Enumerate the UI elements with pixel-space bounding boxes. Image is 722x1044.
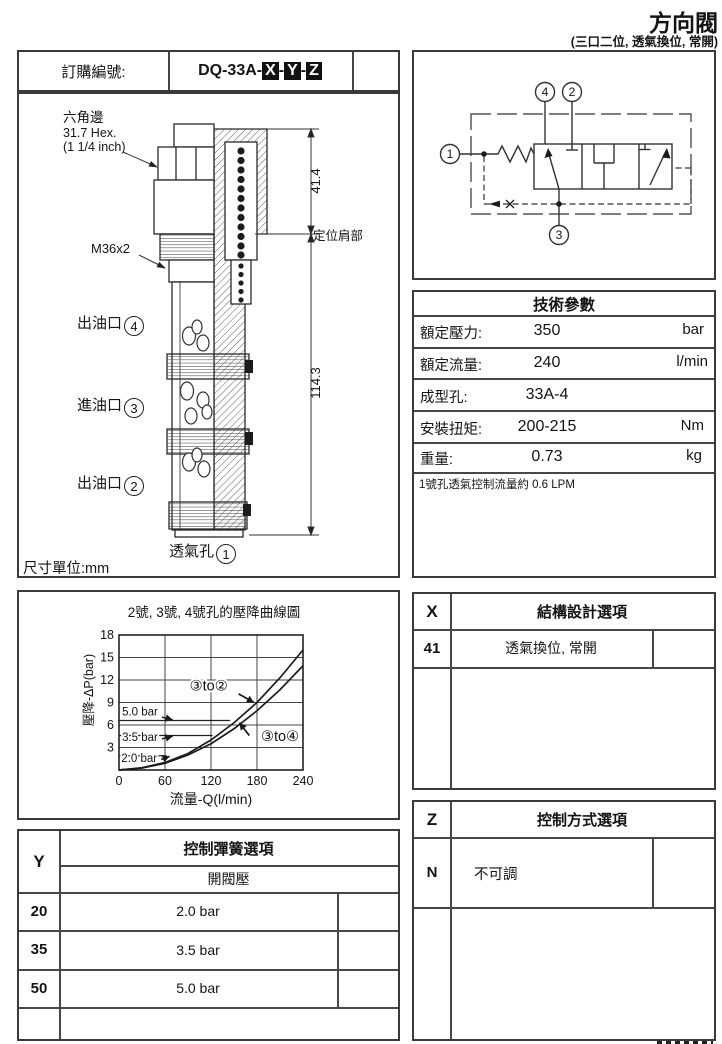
y-table-code: Y xyxy=(19,831,59,892)
tech-row-value: 350 xyxy=(487,319,607,343)
order-code-x: X xyxy=(262,62,279,80)
svg-text:3: 3 xyxy=(107,741,114,755)
symbol-port-2: 2 xyxy=(569,85,576,99)
order-code: DQ-33A-X-Y-Z xyxy=(168,52,352,90)
tech-row-value: 200-215 xyxy=(487,415,607,439)
port4-label-text: 出油口 xyxy=(77,315,122,332)
hydraulic-symbol-panel: 4 2 1 3 xyxy=(412,50,716,280)
shoulder-label: 定位肩部 xyxy=(313,225,363,244)
z-options-table: Z 控制方式選項 N 不可調 xyxy=(412,800,716,1041)
svg-text:12: 12 xyxy=(100,673,114,687)
z-option-code: N xyxy=(414,837,450,907)
tech-row-value: 33A-4 xyxy=(487,383,607,407)
tech-row-value: 240 xyxy=(487,351,607,375)
port4-label: 出油口4 xyxy=(77,312,144,336)
dim-114-label: 114.3 xyxy=(306,360,324,406)
z-table-code: Z xyxy=(414,802,450,837)
hex-label-inch: (1 1/4 inch) xyxy=(63,140,126,154)
hydraulic-symbol: 4 2 1 3 xyxy=(414,52,714,278)
order-code-y: Y xyxy=(284,62,301,80)
tech-row-label: 成型孔: xyxy=(420,386,468,407)
y-table-subheader: 開閥壓 xyxy=(59,865,398,892)
tech-row-unit: bar xyxy=(682,321,704,338)
tech-table-note: 1號孔透氣控制流量約 0.6 LPM xyxy=(419,476,575,492)
svg-text:③to②: ③to② xyxy=(190,679,228,695)
port3-label-text: 進油口 xyxy=(77,397,122,414)
y-option-code: 20 xyxy=(19,892,59,930)
svg-text:180: 180 xyxy=(247,774,268,788)
order-code-z: Z xyxy=(306,62,322,80)
y-option-code: 35 xyxy=(19,930,59,969)
x-options-table: X 結構設計選項 41 透氣換位, 常開 xyxy=(412,592,716,790)
svg-text:0: 0 xyxy=(116,774,123,788)
hex-label: 六角邊 31.7 Hex. (1 1/4 inch) xyxy=(63,110,126,154)
z-table-header: 控制方式選項 xyxy=(450,802,714,837)
y-option-code: 50 xyxy=(19,969,59,1007)
svg-text:15: 15 xyxy=(100,651,114,665)
svg-text:③to④: ③to④ xyxy=(261,729,299,745)
port3-label: 進油口3 xyxy=(77,394,144,418)
svg-text:5.0 bar: 5.0 bar xyxy=(122,707,158,719)
svg-text:240: 240 xyxy=(293,774,314,788)
tech-row-value: 0.73 xyxy=(487,445,607,469)
datasheet-page: 方向閥 (三口二位, 透氣換位, 常開) 訂購編號: DQ-33A-X-Y-Z xyxy=(0,0,722,1044)
y-options-table: Y 控制彈簧選項 開閥壓 20 2.0 bar 35 3.5 bar 50 5.… xyxy=(17,829,400,1041)
port2-label: 出油口2 xyxy=(77,472,144,496)
hex-label-cn: 六角邊 xyxy=(63,110,126,126)
vent-label: 透氣孔1 xyxy=(169,540,236,564)
tech-table-header: 技術參數 xyxy=(414,292,714,315)
y-option-desc: 5.0 bar xyxy=(59,969,337,1007)
port2-number: 2 xyxy=(124,476,144,496)
tech-row-label: 安裝扭矩: xyxy=(420,418,482,439)
symbol-port-1: 1 xyxy=(447,147,454,161)
order-box: 訂購編號: DQ-33A-X-Y-Z xyxy=(17,50,400,92)
x-option-code: 41 xyxy=(414,629,450,667)
port2-label-text: 出油口 xyxy=(77,475,122,492)
x-option-desc: 透氣換位, 常開 xyxy=(450,629,652,667)
x-table-code: X xyxy=(414,594,450,629)
y-option-desc: 3.5 bar xyxy=(59,930,337,969)
svg-text:3.5 bar: 3.5 bar xyxy=(122,732,158,744)
port4-number: 4 xyxy=(124,316,144,336)
svg-text:60: 60 xyxy=(158,774,172,788)
y-option-desc: 2.0 bar xyxy=(59,892,337,930)
dimension-unit-note: 尺寸單位:mm xyxy=(23,557,109,578)
order-label: 訂購編號: xyxy=(19,52,168,90)
page-subtitle: (三口二位, 透氣換位, 常開) xyxy=(571,31,718,50)
tech-parameters-table: 技術參數 額定壓力: 350 bar 額定流量: 240 l/min 成型孔: … xyxy=(412,290,716,578)
symbol-port-4: 4 xyxy=(542,85,549,99)
tech-row-label: 重量: xyxy=(420,448,453,469)
svg-text:18: 18 xyxy=(100,628,114,642)
x-table-header: 結構設計選項 xyxy=(450,594,714,629)
thread-label: M36x2 xyxy=(91,241,130,256)
valve-cross-section-drawing xyxy=(19,94,398,576)
svg-text:120: 120 xyxy=(201,774,222,788)
svg-text:9: 9 xyxy=(107,696,114,710)
order-code-prefix: DQ-33A xyxy=(198,62,257,80)
port3-number: 3 xyxy=(124,398,144,418)
pressure-drop-chart-panel: 2號, 3號, 4號孔的壓降曲線圖 壓降-ΔP(bar) 流量-Q(l/min)… xyxy=(17,590,400,820)
vent-label-text: 透氣孔 xyxy=(169,543,214,560)
svg-text:2.0 bar: 2.0 bar xyxy=(121,753,157,765)
dim-41-label: 41.4 xyxy=(306,160,324,202)
tech-row-unit: l/min xyxy=(676,353,708,370)
tech-row-unit: kg xyxy=(686,447,702,464)
tech-row-label: 額定壓力: xyxy=(420,322,482,343)
z-option-desc: 不可調 xyxy=(474,863,518,884)
svg-text:6: 6 xyxy=(107,718,114,732)
y-table-header: 控制彈簧選項 xyxy=(59,831,398,865)
tech-row-unit: Nm xyxy=(681,417,704,434)
symbol-port-3: 3 xyxy=(556,228,563,242)
vent-number: 1 xyxy=(216,544,236,564)
pressure-drop-chart: 0601201802403691215185.0 bar3.5 bar2.0 b… xyxy=(19,592,398,818)
tech-row-label: 額定流量: xyxy=(420,354,482,375)
valve-drawing-panel: 六角邊 31.7 Hex. (1 1/4 inch) M36x2 出油口4 進油… xyxy=(17,92,400,578)
hex-label-size: 31.7 Hex. xyxy=(63,126,126,140)
